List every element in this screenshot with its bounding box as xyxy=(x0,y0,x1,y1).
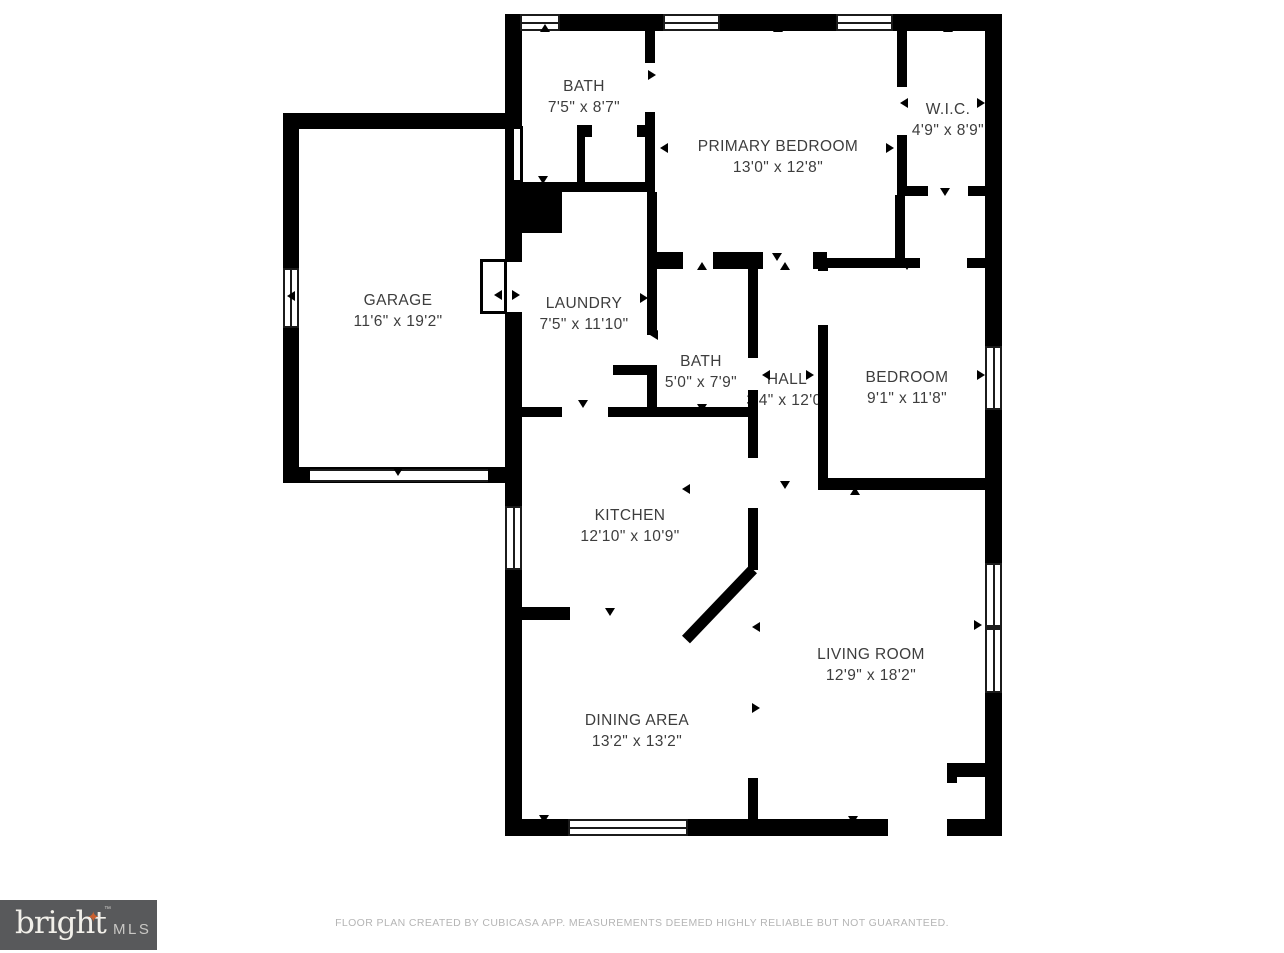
window xyxy=(505,506,522,570)
measure-arrow xyxy=(780,481,790,489)
room-name: LAUNDRY xyxy=(539,293,628,314)
door-leaf xyxy=(480,259,507,314)
wall xyxy=(748,508,758,570)
wall xyxy=(522,407,562,417)
wall xyxy=(505,312,522,410)
measure-arrow xyxy=(507,70,515,80)
window xyxy=(663,14,720,31)
measure-arrow xyxy=(773,24,783,32)
wall xyxy=(818,478,1002,490)
room-dims: 11'6" x 19'2" xyxy=(353,311,442,332)
room-dims: 13'0" x 12'8" xyxy=(698,157,858,178)
wall xyxy=(967,258,1002,268)
measure-arrow xyxy=(752,622,760,632)
measure-arrow xyxy=(287,291,295,301)
measure-arrow xyxy=(977,370,985,380)
measure-arrow xyxy=(578,400,588,408)
wall xyxy=(688,819,888,836)
wall-diagonal xyxy=(682,566,757,644)
wall xyxy=(522,607,570,620)
room-name: KITCHEN xyxy=(580,505,679,526)
room-dims: 5'0" x 7'9" xyxy=(665,372,737,393)
measure-arrow xyxy=(540,24,550,32)
measure-arrow xyxy=(538,176,548,184)
chimney-block xyxy=(508,190,562,233)
measure-arrow xyxy=(772,253,782,261)
room-label-hall: HALL 3'4" x 12'0" xyxy=(746,369,827,411)
measure-arrow xyxy=(605,608,615,616)
measure-arrow xyxy=(510,703,518,713)
wall xyxy=(968,186,1002,196)
room-label-wic: W.I.C. 4'9" x 8'9" xyxy=(912,99,984,141)
wall xyxy=(947,819,1002,836)
room-dims: 7'5" x 8'7" xyxy=(548,97,620,118)
measure-arrow xyxy=(682,484,690,494)
measure-arrow xyxy=(900,98,908,108)
door-opening xyxy=(505,262,522,312)
wall xyxy=(645,112,655,192)
wall xyxy=(818,325,828,478)
wall xyxy=(637,125,655,137)
measure-arrow xyxy=(943,24,953,32)
wall xyxy=(655,252,683,269)
wall xyxy=(608,407,655,417)
wall xyxy=(895,195,905,258)
window xyxy=(985,346,1002,410)
measure-arrow xyxy=(762,370,770,380)
window xyxy=(568,819,688,836)
measure-arrow xyxy=(977,98,985,108)
room-dims: 7'5" x 11'10" xyxy=(539,314,628,335)
room-name: BEDROOM xyxy=(866,367,949,388)
door-opening-front xyxy=(888,819,947,836)
measure-arrow xyxy=(697,262,707,270)
room-label-living-room: LIVING ROOM 12'9" x 18'2" xyxy=(817,644,925,686)
room-label-garage: GARAGE 11'6" x 19'2" xyxy=(353,290,442,332)
room-label-kitchen: KITCHEN 12'10" x 10'9" xyxy=(580,505,679,547)
measure-arrow xyxy=(494,290,502,300)
window-double xyxy=(985,563,1002,693)
wall xyxy=(748,778,758,819)
measure-arrow xyxy=(752,703,760,713)
room-name: GARAGE xyxy=(353,290,442,311)
measure-arrow xyxy=(640,293,648,303)
measure-arrow xyxy=(900,479,910,487)
room-name: LIVING ROOM xyxy=(817,644,925,665)
floorplan-screenshot: BATH 7'5" x 8'7" PRIMARY BEDROOM 13'0" x… xyxy=(0,0,1284,953)
room-name: BATH xyxy=(548,76,620,97)
room-name: W.I.C. xyxy=(912,99,984,120)
measure-arrow xyxy=(539,815,549,823)
room-label-laundry: LAUNDRY 7'5" x 11'10" xyxy=(539,293,628,335)
wall xyxy=(748,390,758,458)
room-label-primary-bedroom: PRIMARY BEDROOM 13'0" x 12'8" xyxy=(698,136,858,178)
room-name: DINING AREA xyxy=(585,710,689,731)
measure-arrow xyxy=(940,188,950,196)
measure-arrow xyxy=(902,262,912,270)
room-label-bath-upper: BATH 7'5" x 8'7" xyxy=(548,76,620,118)
room-label-bedroom: BEDROOM 9'1" x 11'8" xyxy=(866,367,949,409)
wall xyxy=(613,365,657,375)
wall xyxy=(748,263,758,358)
wall xyxy=(577,182,655,192)
measure-arrow xyxy=(660,143,668,153)
room-label-bath-middle: BATH 5'0" x 7'9" xyxy=(665,351,737,393)
measure-arrow xyxy=(393,468,403,476)
measure-arrow xyxy=(850,487,860,495)
room-dims: 9'1" x 11'8" xyxy=(866,388,949,409)
room-name: BATH xyxy=(665,351,737,372)
wall xyxy=(947,763,957,783)
disclaimer-text: FLOOR PLAN CREATED BY CUBICASA APP. MEAS… xyxy=(0,917,1284,929)
measure-arrow xyxy=(974,620,982,630)
door-leaf xyxy=(511,126,523,183)
trademark-symbol: ™ xyxy=(104,906,111,913)
room-dims: 3'4" x 12'0" xyxy=(746,390,827,411)
room-name: PRIMARY BEDROOM xyxy=(698,136,858,157)
room-dims: 12'10" x 10'9" xyxy=(580,526,679,547)
room-dims: 12'9" x 18'2" xyxy=(817,665,925,686)
wall xyxy=(645,31,655,63)
measure-arrow xyxy=(697,404,707,412)
measure-arrow xyxy=(393,116,403,124)
measure-arrow xyxy=(650,330,658,340)
wall xyxy=(985,14,1002,346)
window xyxy=(836,14,893,31)
measure-arrow xyxy=(648,70,656,80)
measure-arrow xyxy=(886,143,894,153)
wall xyxy=(897,31,907,87)
measure-arrow xyxy=(806,370,814,380)
room-dims: 4'9" x 8'9" xyxy=(912,120,984,141)
wall xyxy=(505,14,1002,31)
room-dims: 13'2" x 13'2" xyxy=(585,731,689,752)
measure-arrow xyxy=(848,816,858,824)
room-label-dining-area: DINING AREA 13'2" x 13'2" xyxy=(585,710,689,752)
wall xyxy=(505,410,522,506)
room-name: HALL xyxy=(746,369,827,390)
measure-arrow xyxy=(780,262,790,270)
measure-arrow xyxy=(512,290,520,300)
